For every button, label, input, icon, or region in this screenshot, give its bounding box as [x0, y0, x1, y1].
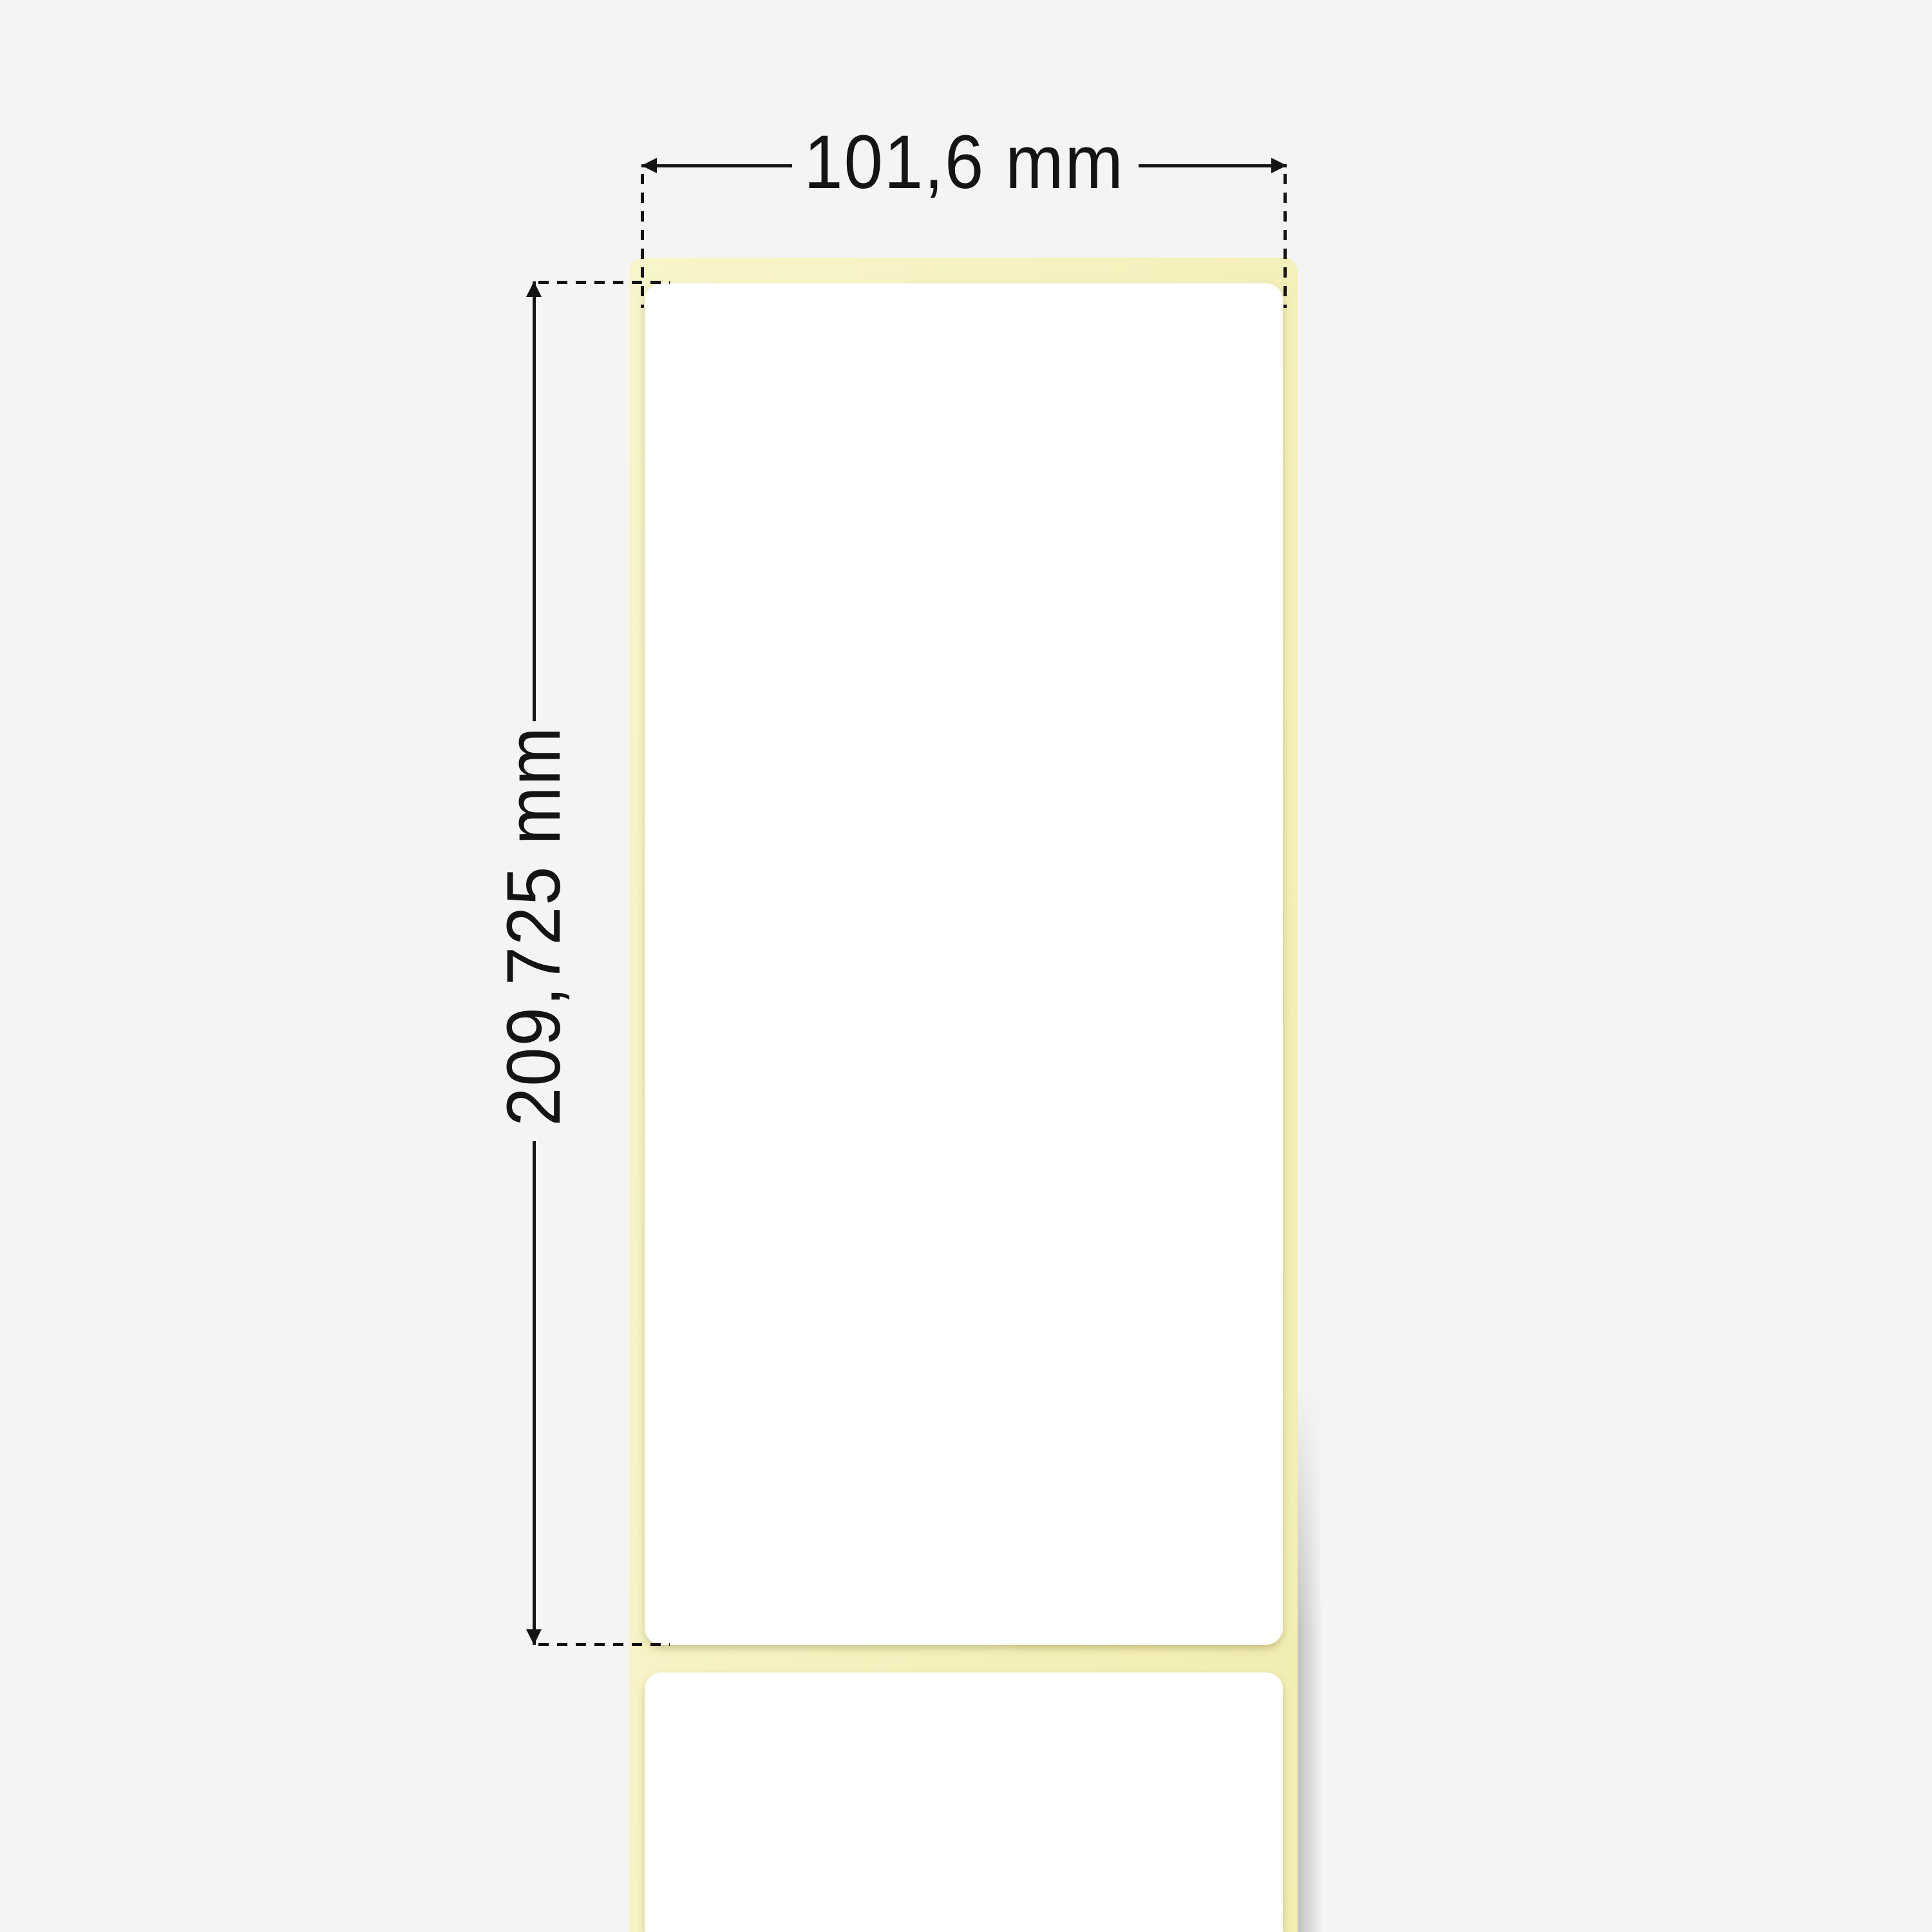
- height-extension-line-bottom: [538, 1643, 670, 1646]
- height-dimension-line-top: [533, 281, 536, 721]
- height-dimension-label: 209,725 mm: [496, 726, 572, 1126]
- width-extension-line-left: [641, 174, 644, 308]
- blank-label-2: [645, 1672, 1283, 1932]
- width-dimension-line-right: [1139, 164, 1287, 167]
- width-dimension-line-left: [641, 164, 792, 167]
- height-extension-line-top: [538, 281, 670, 284]
- blank-label-1: [645, 283, 1283, 1645]
- arrow-left-icon: [641, 158, 657, 173]
- height-dimension-line-bottom: [533, 1141, 536, 1645]
- arrow-right-icon: [1271, 158, 1287, 173]
- width-extension-line-right: [1283, 174, 1287, 308]
- width-dimension-label: 101,6 mm: [786, 124, 1142, 200]
- label-dimension-diagram: 101,6 mm 209,725 mm: [0, 0, 1932, 1932]
- liner-edge-shadow: [1298, 1385, 1322, 1932]
